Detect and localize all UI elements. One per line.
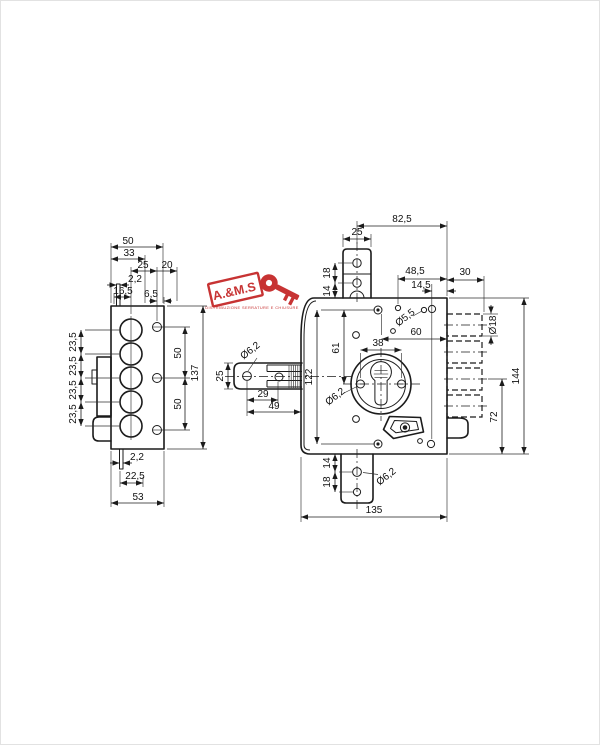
dim-72: 72 bbox=[489, 411, 500, 423]
latch-bolt bbox=[447, 418, 468, 438]
dim-bracket-25: 25 bbox=[215, 370, 226, 382]
side-view bbox=[92, 284, 164, 469]
front-view-dimensions: 82,5 25 18 14 48,5 14,5 30 Ø5,5 60 38 61… bbox=[301, 214, 529, 522]
lock-body-outline bbox=[301, 298, 447, 454]
stamp-logo: A.&M.S DISTRIBUZIONE SERRATURE E CHIUSUR… bbox=[205, 271, 302, 310]
dim-50-screws-1: 50 bbox=[173, 347, 184, 359]
dim-tab-25: 25 bbox=[351, 227, 363, 238]
lock-technical-drawing: 50 33 25 20 2,2 16,5 6,5 23,5 23,5 23,5 … bbox=[1, 1, 599, 744]
dim-30: 30 bbox=[459, 267, 471, 278]
side-view-dimensions: 50 33 25 20 2,2 16,5 6,5 23,5 23,5 23,5 … bbox=[68, 236, 207, 507]
dim-2-2-bottom: 2,2 bbox=[130, 452, 144, 463]
dim-16-5: 16,5 bbox=[113, 286, 133, 297]
dim-23-5-1: 23,5 bbox=[68, 332, 79, 352]
dim-48-5: 48,5 bbox=[405, 266, 425, 277]
dim-bracket-dia6-2: Ø6,2 bbox=[239, 340, 263, 362]
dim-144: 144 bbox=[511, 367, 522, 384]
dim-53: 53 bbox=[132, 492, 144, 503]
deadbolt-pins bbox=[447, 314, 482, 417]
dim-20: 20 bbox=[161, 260, 173, 271]
dim-22-5: 22,5 bbox=[125, 471, 145, 482]
dim-49: 49 bbox=[268, 401, 280, 412]
latch-nose-side bbox=[93, 417, 111, 441]
bolt-bracket-outline bbox=[234, 363, 302, 389]
bracket-hole-1 bbox=[243, 372, 252, 381]
dim-top-14: 14 bbox=[322, 285, 333, 297]
bolt-housing-side bbox=[97, 357, 111, 416]
dim-14-5: 14,5 bbox=[411, 280, 431, 291]
dim-135: 135 bbox=[366, 505, 383, 516]
bottom-pin bbox=[120, 449, 124, 469]
dim-50-top: 50 bbox=[122, 236, 134, 247]
dim-6-5: 6,5 bbox=[144, 289, 158, 300]
technical-drawing-canvas: 50 33 25 20 2,2 16,5 6,5 23,5 23,5 23,5 … bbox=[0, 0, 600, 745]
dim-23-5-4: 23,5 bbox=[68, 404, 79, 424]
dim-bottom-18: 18 bbox=[322, 476, 333, 488]
dim-dia-6-2-bottom: Ø6,2 bbox=[375, 466, 399, 488]
dim-33: 33 bbox=[123, 248, 135, 259]
dim-60: 60 bbox=[410, 327, 422, 338]
bracket-hole-2 bbox=[275, 373, 283, 381]
fixing-screws bbox=[153, 323, 162, 435]
faceplate-outline bbox=[111, 306, 164, 449]
key-icon bbox=[257, 271, 303, 307]
dim-25: 25 bbox=[137, 260, 149, 271]
dim-bottom-14: 14 bbox=[322, 457, 333, 469]
dim-23-5-3: 23,5 bbox=[68, 380, 79, 400]
mounting-tab-top bbox=[343, 249, 371, 298]
dim-23-5-2: 23,5 bbox=[68, 356, 79, 376]
logo-tag: A.&M.S bbox=[208, 273, 263, 307]
logo-tagline: DISTRIBUZIONE SERRATURE E CHIUSURE bbox=[205, 305, 299, 310]
dim-top-18: 18 bbox=[322, 267, 333, 279]
dim-29: 29 bbox=[257, 389, 269, 400]
dim-82-5: 82,5 bbox=[392, 214, 412, 225]
dim-dia-18: Ø18 bbox=[488, 315, 499, 334]
thumb-turn-lever bbox=[384, 417, 424, 439]
dim-61: 61 bbox=[331, 342, 342, 354]
dim-137: 137 bbox=[190, 364, 201, 381]
dim-122: 122 bbox=[304, 368, 315, 385]
dim-38: 38 bbox=[372, 338, 384, 349]
dim-50-screws-2: 50 bbox=[173, 398, 184, 410]
dim-2-2-top: 2,2 bbox=[128, 274, 142, 285]
dim-dia-6-2-cylinder: Ø6,2 bbox=[324, 386, 348, 408]
